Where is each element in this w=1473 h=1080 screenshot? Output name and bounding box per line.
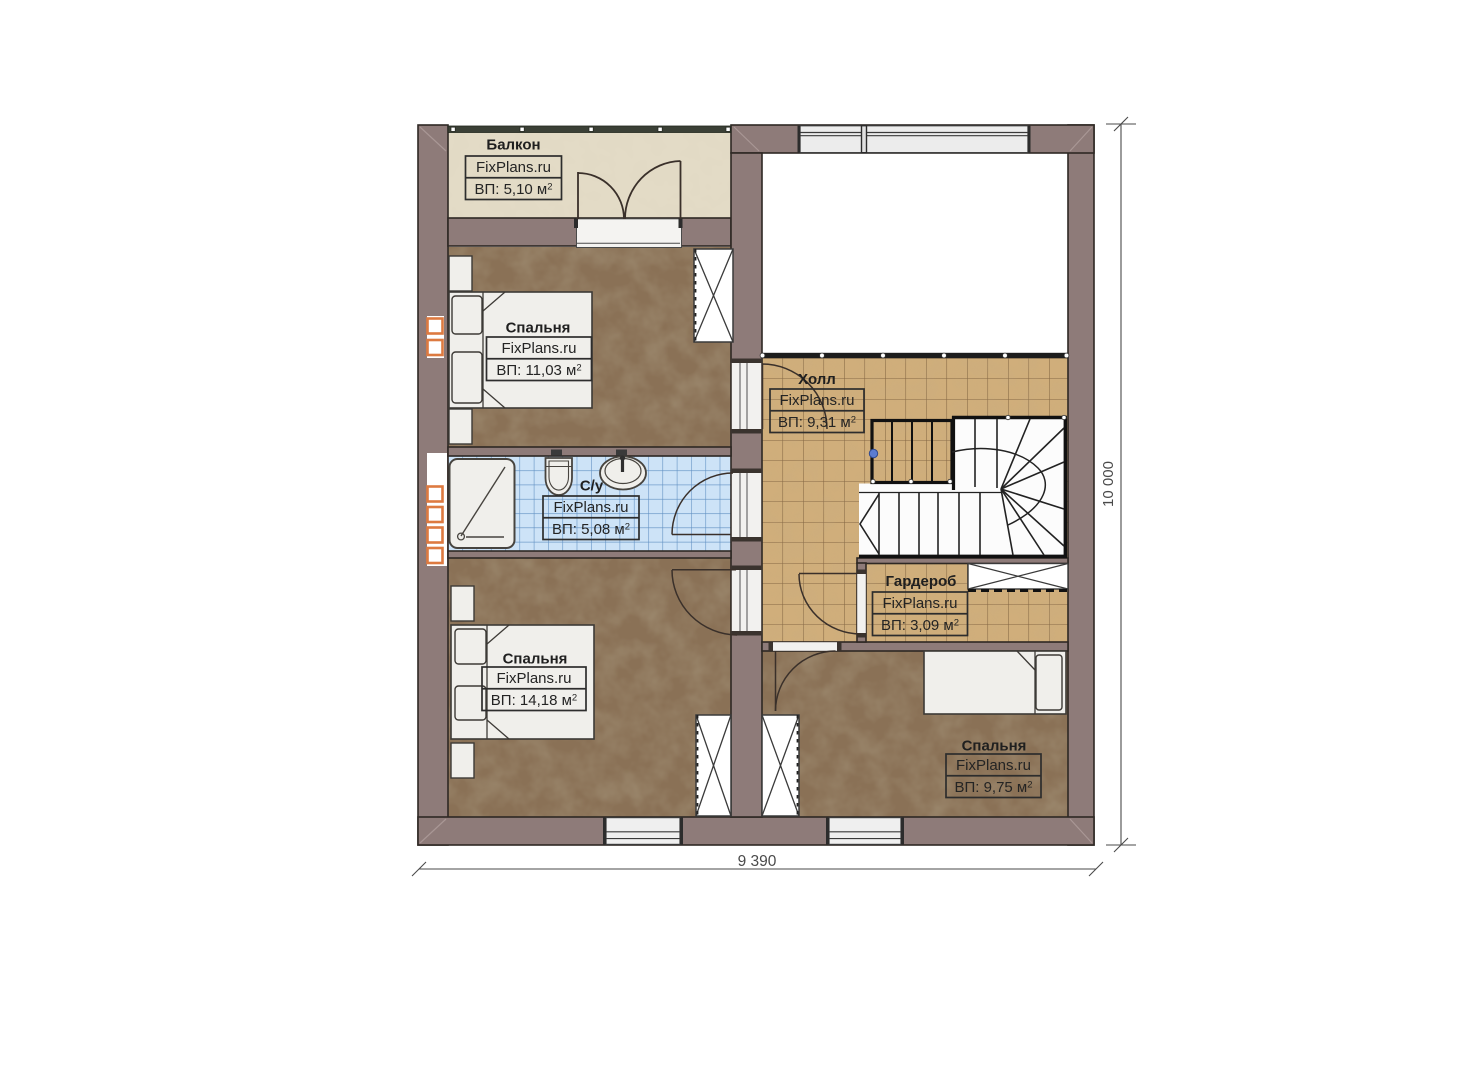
svg-text:ВП: 14,18 м2: ВП: 14,18 м2	[491, 692, 577, 709]
svg-text:ВП: 9,31 м2: ВП: 9,31 м2	[778, 414, 856, 431]
svg-text:10 000: 10 000	[1100, 461, 1117, 507]
svg-text:ВП: 5,08 м2: ВП: 5,08 м2	[552, 521, 630, 538]
svg-text:ВП: 3,09 м2: ВП: 3,09 м2	[881, 617, 959, 634]
svg-text:Спальня: Спальня	[506, 319, 571, 336]
svg-text:ВП: 11,03 м2: ВП: 11,03 м2	[496, 362, 581, 379]
svg-text:Спальня: Спальня	[503, 650, 568, 667]
svg-text:9 390: 9 390	[738, 853, 777, 870]
svg-text:FixPlans.ru: FixPlans.ru	[501, 340, 576, 357]
svg-text:Спальня: Спальня	[962, 737, 1027, 754]
svg-text:С/у: С/у	[580, 477, 604, 494]
svg-text:Балкон: Балкон	[486, 136, 540, 153]
svg-text:Гардероб: Гардероб	[886, 573, 957, 590]
svg-text:FixPlans.ru: FixPlans.ru	[496, 670, 571, 687]
svg-text:ВП: 9,75 м2: ВП: 9,75 м2	[954, 779, 1032, 796]
svg-text:FixPlans.ru: FixPlans.ru	[956, 757, 1031, 774]
svg-text:Холл: Холл	[798, 371, 836, 388]
svg-text:FixPlans.ru: FixPlans.ru	[553, 499, 628, 516]
svg-text:FixPlans.ru: FixPlans.ru	[882, 595, 957, 612]
svg-text:FixPlans.ru: FixPlans.ru	[779, 392, 854, 409]
svg-text:FixPlans.ru: FixPlans.ru	[476, 159, 551, 176]
svg-text:ВП: 5,10 м2: ВП: 5,10 м2	[474, 181, 552, 198]
